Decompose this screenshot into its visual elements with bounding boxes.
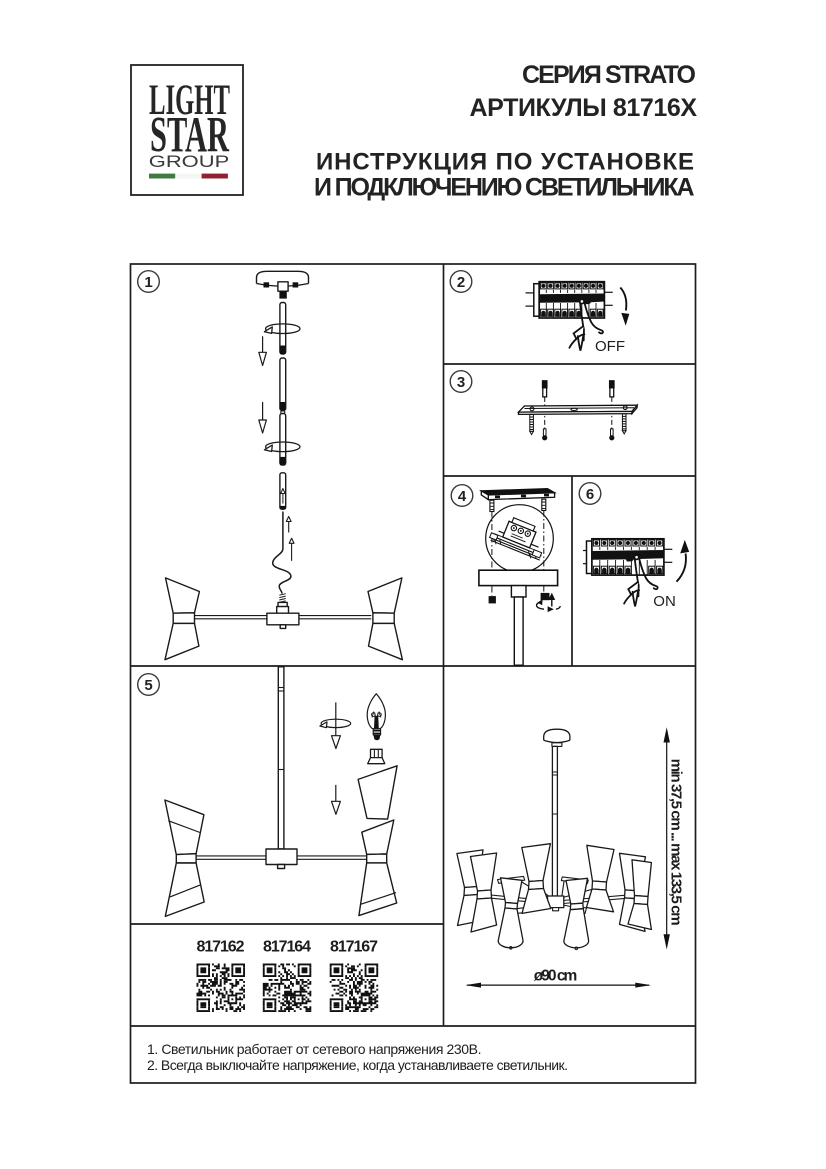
svg-text:5: 5 (144, 677, 152, 694)
svg-text:6: 6 (586, 486, 594, 503)
svg-text:ON: ON (653, 593, 676, 610)
svg-text:817164: 817164 (263, 939, 311, 956)
svg-text:4: 4 (458, 488, 467, 505)
svg-text:СЕРИЯ STRATO: СЕРИЯ STRATO (522, 61, 696, 89)
svg-text:817162: 817162 (197, 939, 245, 956)
svg-text:GROUP: GROUP (149, 153, 230, 171)
svg-text:min 37,5 cm ... max 133,5 cm: min 37,5 cm ... max 133,5 cm (668, 759, 685, 926)
svg-text:1. Светильник работает от сете: 1. Светильник работает от сетевого напря… (147, 1041, 482, 1057)
svg-text:3: 3 (457, 374, 465, 391)
svg-text:2. Всегда выключайте напряжени: 2. Всегда выключайте напряжение, когда у… (147, 1057, 568, 1073)
svg-text:АРТИКУЛЫ 81716X: АРТИКУЛЫ 81716X (470, 94, 698, 122)
svg-text:1: 1 (144, 274, 152, 291)
svg-text:2: 2 (457, 274, 465, 291)
svg-text:817167: 817167 (330, 939, 378, 956)
svg-text:OFF: OFF (595, 338, 625, 355)
svg-text:И ПОДКЛЮЧЕНИЮ СВЕТИЛЬНИКА: И ПОДКЛЮЧЕНИЮ СВЕТИЛЬНИКА (314, 174, 695, 202)
svg-text:ИНСТРУКЦИЯ ПО УСТАНОВКЕ: ИНСТРУКЦИЯ ПО УСТАНОВКЕ (316, 149, 694, 176)
svg-text:ø90 cm: ø90 cm (534, 968, 578, 985)
